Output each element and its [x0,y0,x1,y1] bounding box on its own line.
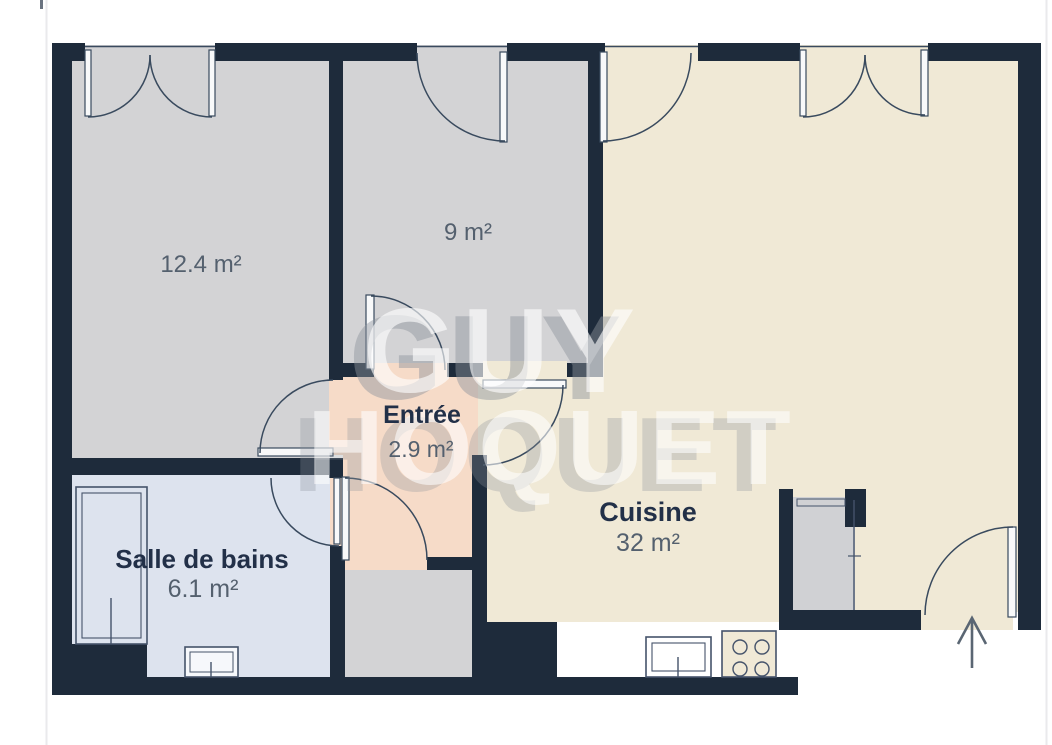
wall [487,622,557,677]
bedroom-1-area-label: 12.4 m² [160,251,241,278]
wall-left [52,43,72,695]
door-leaf [921,50,928,116]
wall-bottom [52,677,798,695]
opening-floor [800,45,928,61]
page-edge-artifact [40,0,43,9]
salle-de-bains-name-label: Salle de bains [115,544,288,574]
door-leaf [800,50,806,116]
wall [52,644,147,695]
wall-right [1018,43,1041,630]
opening-floor [605,45,698,61]
entree-name-label: Entrée [383,401,461,429]
wall [845,489,866,527]
back-room-floor [345,567,472,678]
cuisine-area-label: 32 m² [616,529,680,557]
door-leaf [85,50,91,116]
opening-floor [417,45,507,61]
floor-plan-page: { "plan": { "type": "apartment-floor-pla… [0,0,1052,745]
floor-plan: GUY HOQUET GUY HOQUET 12.4 m² 9 m² Entré… [0,0,1052,745]
cooktop [722,631,776,677]
entree-area-label: 2.9 m² [388,436,454,462]
wall [698,43,800,61]
door-leaf [1008,527,1016,617]
cooktop-outline [722,631,776,677]
bathroom-sink [185,647,238,677]
door-leaf [209,50,215,116]
opening-floor [345,557,427,570]
watermark-line2: HOQUET [307,389,796,507]
bedroom-2-area-label: 9 m² [444,219,492,246]
wall [330,546,345,677]
salle-de-bains-area-label: 6.1 m² [168,575,239,603]
cuisine-name-label: Cuisine [599,497,697,527]
wall [779,610,921,630]
wall [215,43,417,61]
door-leaf [500,52,507,142]
wall [329,43,343,380]
door-leaf [600,52,607,142]
